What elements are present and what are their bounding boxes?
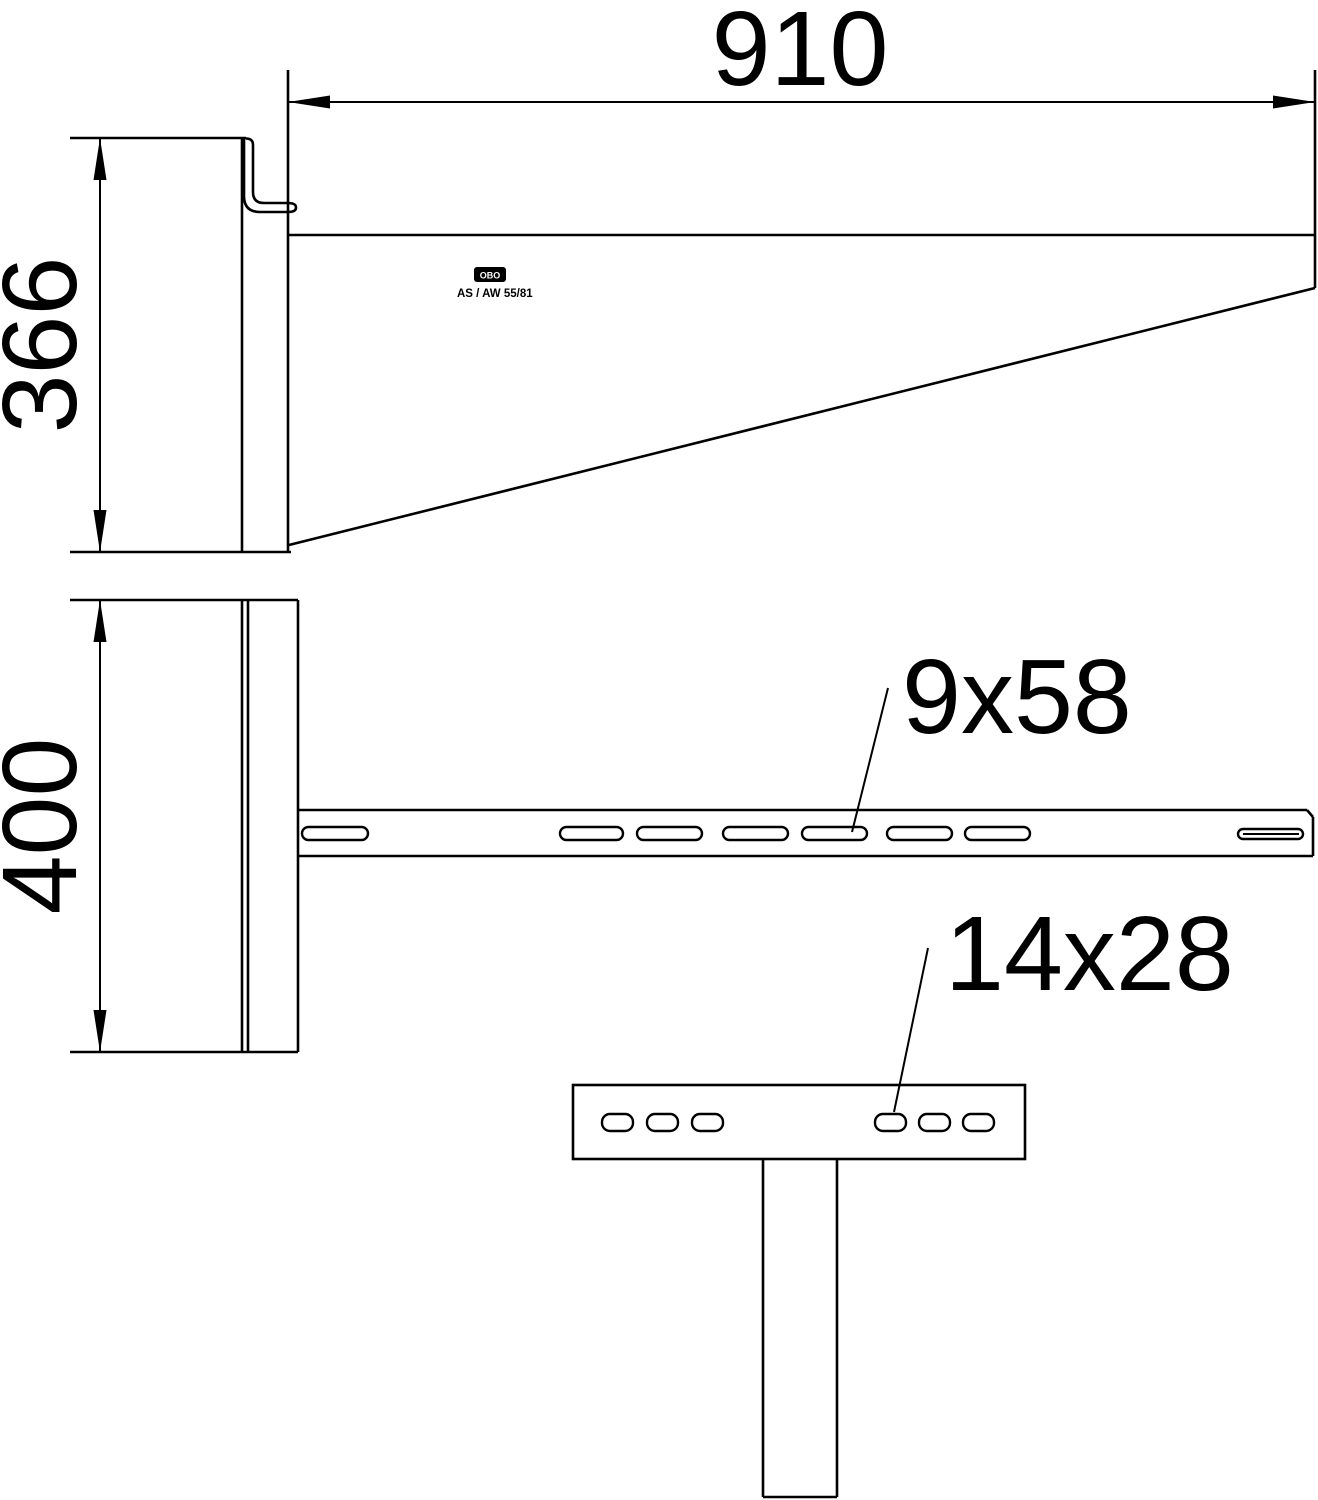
product-model-text: AS / AW 55/81 [457, 288, 533, 300]
dim-400-arrow-bottom [94, 1010, 107, 1052]
arm-slot [560, 827, 623, 840]
dim-366-arrow-top [94, 138, 107, 180]
dim-910-value: 910 [712, 0, 889, 108]
plan-arm-chamfer [1307, 810, 1313, 817]
arm-slot [887, 827, 952, 840]
dim-910-arrow-left [288, 96, 330, 109]
head-plate-outline [573, 1085, 1025, 1159]
arm-slot [723, 827, 788, 840]
wall-bracket-drawing: OBO AS / AW 55/81 910 366 [0, 0, 1318, 1500]
slot-14x28-leader [894, 948, 928, 1112]
slot-label-14x28: 14x28 [894, 895, 1234, 1112]
dimension-400: 400 [0, 600, 107, 1052]
head-plate-slot [963, 1114, 994, 1131]
dim-400-arrow-top [94, 600, 107, 642]
dim-366-value: 366 [0, 257, 99, 434]
dim-400-value: 400 [0, 738, 99, 915]
slot-14x28-value: 14x28 [945, 895, 1234, 1013]
arm-slot [965, 827, 1030, 840]
technical-drawing-canvas: OBO AS / AW 55/81 910 366 [0, 0, 1318, 1500]
slot-9x58-value: 9x58 [902, 638, 1132, 756]
head-plate-view [573, 1085, 1025, 1497]
arm-slot [302, 827, 368, 840]
dim-366-arrow-bottom [94, 510, 107, 552]
slot-label-9x58: 9x58 [852, 638, 1132, 832]
stem [763, 1159, 837, 1497]
product-marking: OBO AS / AW 55/81 [457, 267, 533, 300]
side-view: OBO AS / AW 55/81 [70, 70, 1315, 552]
dimension-366: 366 [0, 138, 107, 552]
head-plate-slot [647, 1114, 678, 1131]
arm-bottom-diagonal-edge [289, 288, 1315, 545]
arm-slot [637, 827, 702, 840]
dim-910-arrow-right [1273, 96, 1315, 109]
head-plate-slots [602, 1114, 994, 1131]
obo-logo-text: OBO [480, 271, 501, 281]
dimension-910: 910 [288, 0, 1315, 109]
head-plate-slot [692, 1114, 723, 1131]
arm-slots [302, 827, 1303, 840]
head-plate-slot [919, 1114, 950, 1131]
arm-slot [802, 827, 867, 840]
head-plate-slot [875, 1114, 906, 1131]
head-plate-slot [602, 1114, 633, 1131]
